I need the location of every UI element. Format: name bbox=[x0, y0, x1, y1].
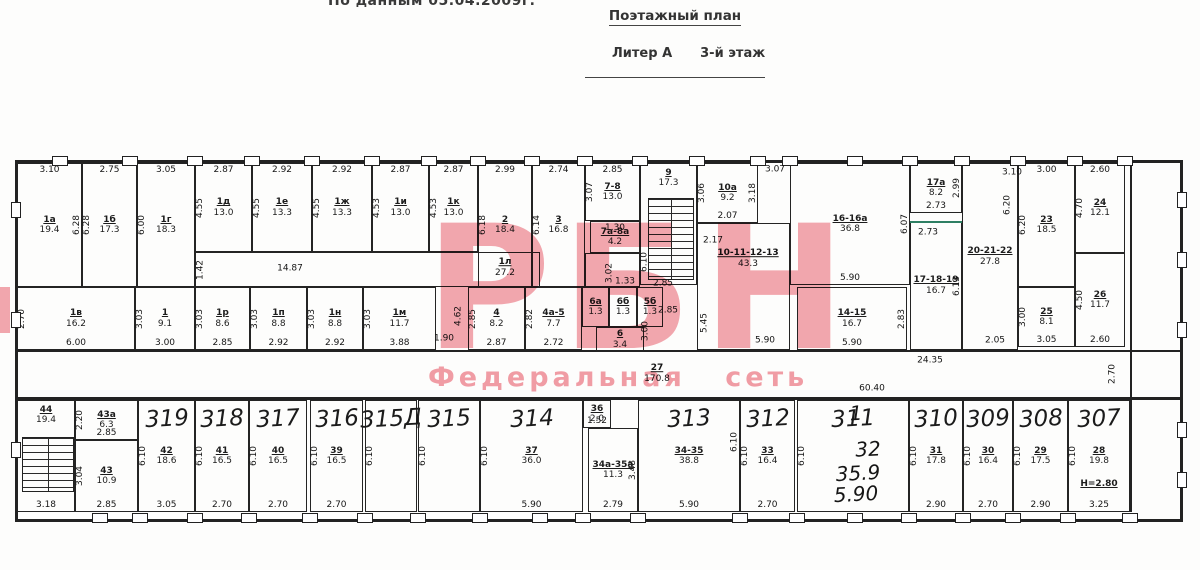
dimension-label: 2.70 bbox=[268, 500, 288, 510]
dimension-label: 2.73 bbox=[926, 201, 946, 211]
dimension-label: 2.70 bbox=[757, 500, 777, 510]
room-label: 34-35 bbox=[675, 446, 704, 456]
dimension-label: 2.70 bbox=[978, 500, 998, 510]
room-4а-5: 4а-57.72.722.82 bbox=[525, 287, 582, 350]
room-label: 6б bbox=[616, 297, 630, 307]
dimension-label: 6.10 bbox=[249, 446, 259, 466]
window-mark bbox=[472, 513, 488, 523]
room-area: 13.0 bbox=[213, 208, 233, 218]
dimension-label: 2.99 bbox=[952, 178, 962, 198]
room-area: 17.3 bbox=[99, 225, 119, 235]
room-1в: 1в16.26.002.70 bbox=[17, 287, 135, 350]
window-mark bbox=[575, 513, 591, 523]
dimension-label: 2.85 bbox=[468, 308, 478, 328]
dimension-label: 6.28 bbox=[82, 215, 92, 235]
window-mark bbox=[847, 513, 863, 523]
window-mark bbox=[689, 156, 705, 166]
dimension-label: 3.00 bbox=[1036, 165, 1056, 175]
room-area: 9.1 bbox=[158, 319, 172, 329]
room-area: 16.2 bbox=[66, 319, 86, 329]
room-316: 3163916.52.706.10 bbox=[310, 400, 363, 512]
window-mark bbox=[524, 156, 540, 166]
handwritten-note: 1 bbox=[849, 401, 863, 426]
room-area: 16.7 bbox=[838, 319, 867, 329]
dimension-label: 6.10 bbox=[909, 446, 919, 466]
dimension-label: 6.18 bbox=[478, 215, 488, 235]
window-mark bbox=[470, 156, 486, 166]
window-mark bbox=[132, 513, 148, 523]
room-319: 3194218.63.056.10 bbox=[138, 400, 195, 512]
room-area: 1.3 bbox=[643, 307, 657, 317]
room-label: 17а bbox=[927, 178, 946, 188]
window-mark bbox=[92, 513, 108, 523]
window-mark bbox=[421, 156, 437, 166]
room-label: 1н bbox=[328, 308, 342, 318]
window-mark bbox=[750, 156, 766, 166]
dimension-label: 6.10 bbox=[480, 446, 490, 466]
dimension-label: 4.53 bbox=[429, 197, 439, 217]
room-number-handwritten: 313 bbox=[666, 405, 711, 433]
room-26: 2611.72.604.50 bbox=[1075, 253, 1125, 347]
room-label: 1п bbox=[271, 308, 285, 318]
dimension-label: 2.87 bbox=[213, 165, 233, 175]
room-area: 8.2 bbox=[489, 319, 503, 329]
room-1ж: 1ж13.32.924.55 bbox=[312, 163, 372, 252]
dimension-label: 3.03 bbox=[363, 308, 373, 328]
dimension-label: 6.10 bbox=[797, 446, 807, 466]
room-label: 28 bbox=[1089, 446, 1109, 456]
room-label: 1б bbox=[99, 215, 119, 225]
room-label: 23 bbox=[1036, 215, 1056, 225]
dimension-label: 3.05 bbox=[1036, 335, 1056, 345]
room-318: 3184116.52.706.10 bbox=[195, 400, 249, 512]
window-mark bbox=[241, 513, 257, 523]
dimension-label: 3.18 bbox=[748, 183, 758, 203]
window-mark bbox=[1067, 156, 1083, 166]
window-mark bbox=[304, 156, 320, 166]
room-1р: 1р8.62.853.03 bbox=[195, 287, 250, 350]
window-mark bbox=[954, 156, 970, 166]
room-area: 3.4 bbox=[613, 340, 627, 350]
room-1б: 1б17.32.756.28 bbox=[82, 163, 137, 287]
window-mark bbox=[630, 513, 646, 523]
room-label: 39 bbox=[326, 446, 346, 456]
dimension-label: 3.03 bbox=[307, 308, 317, 328]
window-mark bbox=[1122, 513, 1138, 523]
window-mark bbox=[1177, 192, 1187, 208]
room-34а-35а: 34а-35а11.32.793.48 bbox=[588, 428, 638, 512]
dimension-label: 5.90 bbox=[521, 500, 541, 510]
room-area: 8.8 bbox=[328, 319, 342, 329]
room-area: 13.0 bbox=[602, 192, 622, 202]
room-area: 16.5 bbox=[268, 456, 288, 466]
window-mark bbox=[847, 156, 863, 166]
room-310: 3103117.82.906.10 bbox=[909, 400, 963, 512]
dimension-label: 6.20 bbox=[1003, 195, 1014, 215]
room-label: 25 bbox=[1039, 307, 1053, 317]
room-label: 14-15 bbox=[838, 308, 867, 318]
dimension-label: 4.55 bbox=[195, 197, 205, 217]
room-height-note: Н=2.80 bbox=[1069, 479, 1129, 489]
room-number-handwritten: 317 bbox=[255, 405, 300, 433]
dimension-label: 1.30 bbox=[605, 223, 625, 233]
right-wing-wall bbox=[1130, 163, 1132, 512]
dimension-label: 3.07 bbox=[585, 182, 595, 202]
dimension-label: 1.90 bbox=[434, 334, 454, 345]
dimension-label: 2.85 bbox=[96, 428, 116, 438]
room-number-handwritten: 319 bbox=[144, 405, 189, 433]
dimension-label: 2.20 bbox=[75, 410, 85, 430]
room-label: 10а bbox=[718, 183, 737, 193]
room-17а: 17а8.22.732.99 bbox=[910, 163, 962, 213]
dimension-label: 2.90 bbox=[1030, 500, 1050, 510]
window-mark bbox=[302, 513, 318, 523]
dimension-label: 3.18 bbox=[36, 500, 56, 510]
marker-line bbox=[910, 221, 962, 223]
room-label: 7-8 bbox=[602, 182, 622, 192]
room-area: 10.9 bbox=[96, 476, 116, 486]
floor-plan-document: По данным 05.04.2009г. Поэтажный план Ли… bbox=[0, 0, 1200, 570]
window-mark bbox=[789, 513, 805, 523]
room-1и: 1и13.02.874.53 bbox=[372, 163, 429, 252]
window-mark bbox=[632, 156, 648, 166]
room-number-handwritten: 310 bbox=[913, 405, 958, 433]
room-label: 30 bbox=[978, 446, 998, 456]
room-label: 1г bbox=[156, 215, 176, 225]
dimension-label: 2.92 bbox=[332, 165, 352, 175]
room-label: 37 bbox=[521, 446, 541, 456]
window-mark bbox=[11, 442, 21, 458]
room-area: 18.6 bbox=[156, 456, 176, 466]
room-6а: 6а1.3 bbox=[582, 287, 609, 327]
room-7-8: 7-813.02.853.07 bbox=[585, 163, 640, 221]
window-mark bbox=[1177, 422, 1187, 438]
dimension-label: 2.92 bbox=[325, 338, 345, 348]
room-label: 9 bbox=[641, 168, 696, 178]
dimension-label: 2.87 bbox=[390, 165, 410, 175]
room-number-handwritten: 308 bbox=[1018, 405, 1063, 433]
dimension-label: 6.10 bbox=[310, 446, 320, 466]
room-area: 18.4 bbox=[495, 225, 515, 235]
room-area: 17.3 bbox=[641, 178, 696, 188]
room-1а: 1а19.43.106.28 bbox=[17, 163, 82, 287]
dimension-label: 2.92 bbox=[268, 338, 288, 348]
room-area: 19.8 bbox=[1089, 456, 1109, 466]
dimension-label: 2.74 bbox=[548, 165, 568, 175]
room-area: 36.8 bbox=[833, 224, 868, 234]
dimension-label: 3.10 bbox=[1002, 168, 1022, 179]
dimension-label: 6.14 bbox=[532, 215, 542, 235]
dimension-label: 3.00 bbox=[641, 321, 652, 341]
room-309: 3093016.42.706.10 bbox=[963, 400, 1013, 512]
dimension-label: 6.10 bbox=[640, 252, 651, 272]
dimension-label: 3.03 bbox=[195, 308, 205, 328]
room-1д: 1д13.02.874.55 bbox=[195, 163, 252, 252]
dimension-label: 3.10 bbox=[39, 165, 59, 175]
room-area: 16.8 bbox=[548, 225, 568, 235]
room-43: 4310.92.853.04 bbox=[75, 440, 138, 512]
room-area: 13.0 bbox=[443, 208, 463, 218]
room-label: 3 bbox=[548, 215, 568, 225]
window-mark bbox=[1005, 513, 1021, 523]
room-number-handwritten: 316 bbox=[314, 405, 359, 433]
dimension-label: 5.90 bbox=[842, 338, 862, 348]
dimension-label: 4.55 bbox=[312, 197, 322, 217]
room-315: 3156.10 bbox=[418, 400, 480, 512]
dimension-label: 6.20 bbox=[1018, 215, 1028, 235]
room-label: 1д bbox=[213, 197, 233, 207]
dimension-label: 10-11-12-1343.3 bbox=[717, 248, 778, 270]
room-area: 7.7 bbox=[542, 319, 564, 329]
dimension-label: 2.87 bbox=[443, 165, 463, 175]
room-area: 8.2 bbox=[927, 188, 946, 198]
dimension-label: 5.90 bbox=[840, 273, 860, 283]
window-mark bbox=[532, 513, 548, 523]
room-label: 1к bbox=[443, 197, 463, 207]
dimension-label: 5.90 bbox=[755, 336, 775, 347]
room-area: 16.4 bbox=[978, 456, 998, 466]
dimension-label: 2.70 bbox=[326, 500, 346, 510]
room-label: 4 bbox=[489, 308, 503, 318]
dimension-label: 4.55 bbox=[252, 197, 262, 217]
dimension-label: 6.00 bbox=[137, 215, 147, 235]
dimension-label: 3.03 bbox=[250, 308, 260, 328]
window-mark bbox=[1177, 322, 1187, 338]
dimension-label: 4.50 bbox=[1075, 290, 1085, 310]
room-17-18-19: 17-18-1916.76.13 bbox=[910, 221, 962, 350]
dimension-label: 2.99 bbox=[495, 165, 515, 175]
room-317: 3174016.52.706.10 bbox=[249, 400, 307, 512]
room-area: 19.4 bbox=[39, 225, 59, 235]
dimension-label: 3.00 bbox=[1018, 307, 1028, 327]
room-label: 1м bbox=[389, 308, 409, 318]
dimension-label: 6.10 bbox=[418, 446, 428, 466]
window-mark bbox=[1117, 156, 1133, 166]
dimension-label: 2.72 bbox=[543, 338, 563, 348]
room-area: 16.5 bbox=[212, 456, 232, 466]
window-mark bbox=[902, 156, 918, 166]
handwritten-note: 32 bbox=[855, 436, 882, 461]
room-area: 11.7 bbox=[1090, 300, 1110, 310]
room-6б: 6б1.3 bbox=[609, 287, 637, 327]
watermark-fragment bbox=[0, 287, 10, 333]
room-number-handwritten: 315 bbox=[426, 405, 471, 433]
dimension-label: 2.07 bbox=[717, 211, 737, 221]
window-mark bbox=[364, 156, 380, 166]
room-3: 316.82.746.14 bbox=[532, 163, 585, 287]
room-label: 1р bbox=[215, 308, 229, 318]
room-6: 63.4 bbox=[596, 327, 644, 352]
room-1: 19.13.003.03 bbox=[135, 287, 195, 350]
dimension-label: 4.70 bbox=[1075, 198, 1085, 218]
window-mark bbox=[357, 513, 373, 523]
window-mark bbox=[11, 202, 21, 218]
dimension-label: 3.04 bbox=[75, 466, 85, 486]
room-area: 38.8 bbox=[675, 456, 704, 466]
window-mark bbox=[1177, 252, 1187, 268]
room-label: 41 bbox=[212, 446, 232, 456]
dimension-label: 2.70 bbox=[212, 500, 232, 510]
room-313: 31334-3538.85.90 bbox=[638, 400, 740, 512]
room-label: 1и bbox=[390, 197, 410, 207]
window-mark bbox=[732, 513, 748, 523]
window-mark bbox=[187, 156, 203, 166]
window-mark bbox=[1060, 513, 1076, 523]
dimension-label: 3.06 bbox=[697, 183, 707, 203]
room-area: 9.2 bbox=[718, 193, 737, 203]
window-mark bbox=[52, 156, 68, 166]
window-mark bbox=[11, 312, 21, 328]
room-area: 27.8 bbox=[967, 257, 1012, 267]
room-14-15: 14-1516.75.902.83 bbox=[797, 287, 907, 350]
dimension-label: 2.85 bbox=[653, 279, 673, 290]
room-315Д: 315Д6.10 bbox=[365, 400, 417, 512]
dimension-label: 1.33 bbox=[615, 277, 635, 288]
room-area: 1.3 bbox=[588, 307, 602, 317]
dimension-label: 3.05 bbox=[156, 165, 176, 175]
dimension-label: 6.00 bbox=[66, 338, 86, 348]
room-label: 24 bbox=[1090, 198, 1110, 208]
room-number-handwritten: 314 bbox=[509, 405, 554, 433]
room-1е: 1е13.32.924.55 bbox=[252, 163, 312, 252]
room-1п: 1п8.82.923.03 bbox=[250, 287, 307, 350]
room-7а-8а: 7а-8а4.21.30 bbox=[590, 221, 640, 253]
dimension-label: 2.92 bbox=[272, 165, 292, 175]
dimension-label: 3.05 bbox=[156, 500, 176, 510]
room-label: 1ж bbox=[332, 197, 352, 207]
dimension-label: 60.40 bbox=[859, 384, 885, 395]
room-area: 16.5 bbox=[326, 456, 346, 466]
room-label: 29 bbox=[1030, 446, 1050, 456]
room-label: 1а bbox=[39, 215, 59, 225]
room-43а: 43а6.32.852.20 bbox=[75, 400, 138, 440]
room-area: 18.5 bbox=[1036, 225, 1056, 235]
room-label: 1в bbox=[66, 308, 86, 318]
room-number-handwritten: 312 bbox=[745, 405, 790, 433]
room-area: 18.3 bbox=[156, 225, 176, 235]
room-area: 8.8 bbox=[271, 319, 285, 329]
dimension-label: 2.70 bbox=[1108, 364, 1119, 384]
dimension-label: 5.90 bbox=[679, 500, 699, 510]
dimension-label: 3.00 bbox=[155, 338, 175, 348]
room-number-handwritten: 315Д bbox=[359, 404, 422, 433]
room-314: 3143736.05.906.10 bbox=[480, 400, 583, 512]
room-area: 17.8 bbox=[926, 456, 946, 466]
room-area: 4.2 bbox=[601, 237, 629, 247]
room-area: 17.5 bbox=[1030, 456, 1050, 466]
window-mark bbox=[1177, 472, 1187, 488]
room-label: 1 bbox=[158, 308, 172, 318]
room-307: 3072819.8Н=2.803.256.10 bbox=[1068, 400, 1130, 512]
room-number-handwritten: 309 bbox=[965, 405, 1010, 433]
dimension-label: 14.87 bbox=[277, 264, 303, 275]
room-label: 26 bbox=[1090, 290, 1110, 300]
room-label: 42 bbox=[156, 446, 176, 456]
window-mark bbox=[955, 513, 971, 523]
dimension-label: 2.90 bbox=[926, 500, 946, 510]
room-area: 8.1 bbox=[1039, 317, 1053, 327]
dimension-label: 6.10 bbox=[730, 432, 741, 452]
room-24: 2412.12.604.70 bbox=[1075, 163, 1125, 253]
dimension-label: 27170.8 bbox=[644, 363, 670, 385]
room-label: 31 bbox=[926, 446, 946, 456]
room-label: 36 bbox=[590, 404, 604, 414]
room-1н: 1н8.82.923.03 bbox=[307, 287, 363, 350]
dimension-label: 2.79 bbox=[603, 500, 623, 510]
room-label: 4а-5 bbox=[542, 308, 564, 318]
dimension-label: 2.75 bbox=[99, 165, 119, 175]
room-23: 2318.53.006.20 bbox=[1018, 163, 1075, 287]
dimension-label: 1.52 bbox=[587, 416, 607, 426]
dimension-label: 2.60 bbox=[1090, 335, 1110, 345]
dimension-label: 3.88 bbox=[389, 338, 409, 348]
room-16-16а: 16-16а36.85.906.07 bbox=[790, 163, 910, 285]
dimension-label: 2.85 bbox=[602, 165, 622, 175]
dimension-label: 2.82 bbox=[525, 308, 535, 328]
room-area: 36.0 bbox=[521, 456, 541, 466]
room-308: 3082917.52.906.10 bbox=[1013, 400, 1068, 512]
dimension-label: 4.53 bbox=[372, 197, 382, 217]
room-area: 1.3 bbox=[616, 307, 630, 317]
room-20-21-22: 20-21-2227.8 bbox=[962, 163, 1018, 350]
dimension-label: 2.73 bbox=[918, 228, 938, 239]
dimension-label: 6.10 bbox=[740, 446, 750, 466]
room-label: 6 bbox=[613, 329, 627, 339]
room-1м: 1м11.73.883.03 bbox=[363, 287, 436, 350]
dimension-label: 6.10 bbox=[365, 446, 375, 466]
floor-plan: 1а19.43.106.281б17.32.756.281г18.33.056.… bbox=[0, 0, 1200, 570]
dimension-label: 24.35 bbox=[917, 356, 943, 367]
staircase bbox=[648, 198, 694, 280]
dimension-label: 3.48 bbox=[628, 460, 638, 480]
room-area: 19.4 bbox=[18, 415, 74, 425]
dimension-label: 3.25 bbox=[1089, 500, 1109, 510]
dimension-label: 2.17 bbox=[703, 236, 723, 247]
room-label: 44 bbox=[18, 405, 74, 415]
room-area: 16.4 bbox=[757, 456, 777, 466]
room-label: 16-16а bbox=[833, 214, 868, 224]
room-312: 3123316.42.706.10 bbox=[740, 400, 795, 512]
room-label: 1е bbox=[272, 197, 292, 207]
room-label: 5б bbox=[643, 297, 657, 307]
window-mark bbox=[577, 156, 593, 166]
dimension-label: 3.03 bbox=[135, 308, 145, 328]
window-mark bbox=[187, 513, 203, 523]
dimension-label: 6.10 bbox=[1013, 446, 1023, 466]
room-label: 6а bbox=[588, 297, 602, 307]
room-number-handwritten: 318 bbox=[199, 405, 244, 433]
window-mark bbox=[410, 513, 426, 523]
dimension-label: 6.28 bbox=[72, 215, 82, 235]
dimension-label: 2.85 bbox=[212, 338, 232, 348]
dimension-label: 5.45 bbox=[700, 313, 711, 333]
room-label: 20-21-22 bbox=[967, 246, 1012, 256]
dimension-label: 4.62 bbox=[454, 306, 465, 326]
window-mark bbox=[1010, 156, 1026, 166]
dimension-label: 6.10 bbox=[195, 446, 205, 466]
room-label: 40 bbox=[268, 446, 288, 456]
room-label: 33 bbox=[757, 446, 777, 456]
room-area: 11.7 bbox=[389, 319, 409, 329]
room-label: 43 bbox=[96, 466, 116, 476]
room-10а: 10а9.22.073.063.18 bbox=[697, 163, 758, 223]
dimension-label: 3.02 bbox=[605, 263, 616, 283]
room-area: 13.3 bbox=[272, 208, 292, 218]
room-25: 258.13.053.00 bbox=[1018, 287, 1075, 347]
dimension-label: 2.85 bbox=[96, 500, 116, 510]
room-1к: 1к13.02.874.53 bbox=[429, 163, 478, 252]
window-mark bbox=[122, 156, 138, 166]
